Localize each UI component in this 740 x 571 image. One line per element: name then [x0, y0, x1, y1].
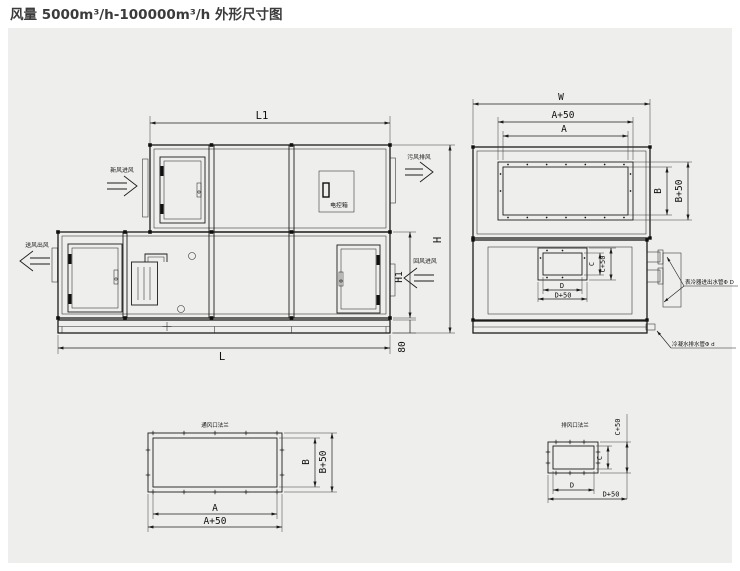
- dim-d-side: D: [560, 282, 564, 290]
- dimension-drawing: 风量 5000m³/h-100000m³/h 外形尺寸图: [0, 0, 740, 571]
- dim-b-side: B: [653, 188, 664, 194]
- dim-a50-flange: A+50: [204, 516, 227, 527]
- dim-c50-side: C+50: [599, 256, 607, 273]
- door-hinge: [69, 254, 72, 264]
- page-title: 风量 5000m³/h-100000m³/h 外形尺寸图: [10, 6, 282, 23]
- dim-80: 80: [397, 341, 408, 353]
- door-hinge: [377, 295, 380, 305]
- coil-pipe-callout: 表冷器进出水管Φ D: [685, 278, 734, 286]
- dim-d-flange: D: [570, 482, 574, 490]
- dim-a50-side: A+50: [552, 110, 575, 121]
- dim-b-flange: B: [301, 459, 312, 465]
- dim-c50-flange: C+50: [614, 419, 622, 436]
- flange-small-title: 排风口法兰: [561, 421, 589, 429]
- dim-a-flange: A: [212, 503, 218, 514]
- drawing-page: 风量 5000m³/h-100000m³/h 外形尺寸图: [0, 0, 740, 571]
- dim-c-side: C: [588, 262, 596, 266]
- drawing-panel: [8, 28, 732, 563]
- dim-l: L: [219, 351, 225, 363]
- return-air-label: 回风进风: [413, 257, 437, 265]
- dim-l1: L1: [256, 110, 269, 122]
- dim-d50-side: D+50: [555, 292, 572, 300]
- door-hinge: [161, 166, 164, 176]
- dim-w: W: [558, 92, 564, 103]
- door-hinge: [161, 204, 164, 214]
- drain-pipe-callout: 冷凝水排水管Φ d: [672, 340, 715, 348]
- dim-b50-side: B+50: [674, 179, 685, 202]
- dim-h1: H1: [394, 271, 405, 283]
- electric-box-label: 电控箱: [330, 201, 348, 209]
- dim-a-side: A: [561, 124, 567, 135]
- door-hinge: [69, 294, 72, 304]
- door-hinge: [377, 255, 380, 265]
- flange-main-title: 通风口法兰: [201, 421, 229, 429]
- dim-b50-flange: B+50: [318, 450, 329, 473]
- dim-d50-flange: D+50: [603, 491, 620, 499]
- exhaust-air-label: 污风排风: [407, 153, 431, 161]
- fresh-air-label: 新风进风: [110, 166, 134, 174]
- dim-c-flange: C: [596, 456, 604, 460]
- dim-h: H: [432, 237, 444, 243]
- supply-air-label: 送风出风: [25, 241, 49, 249]
